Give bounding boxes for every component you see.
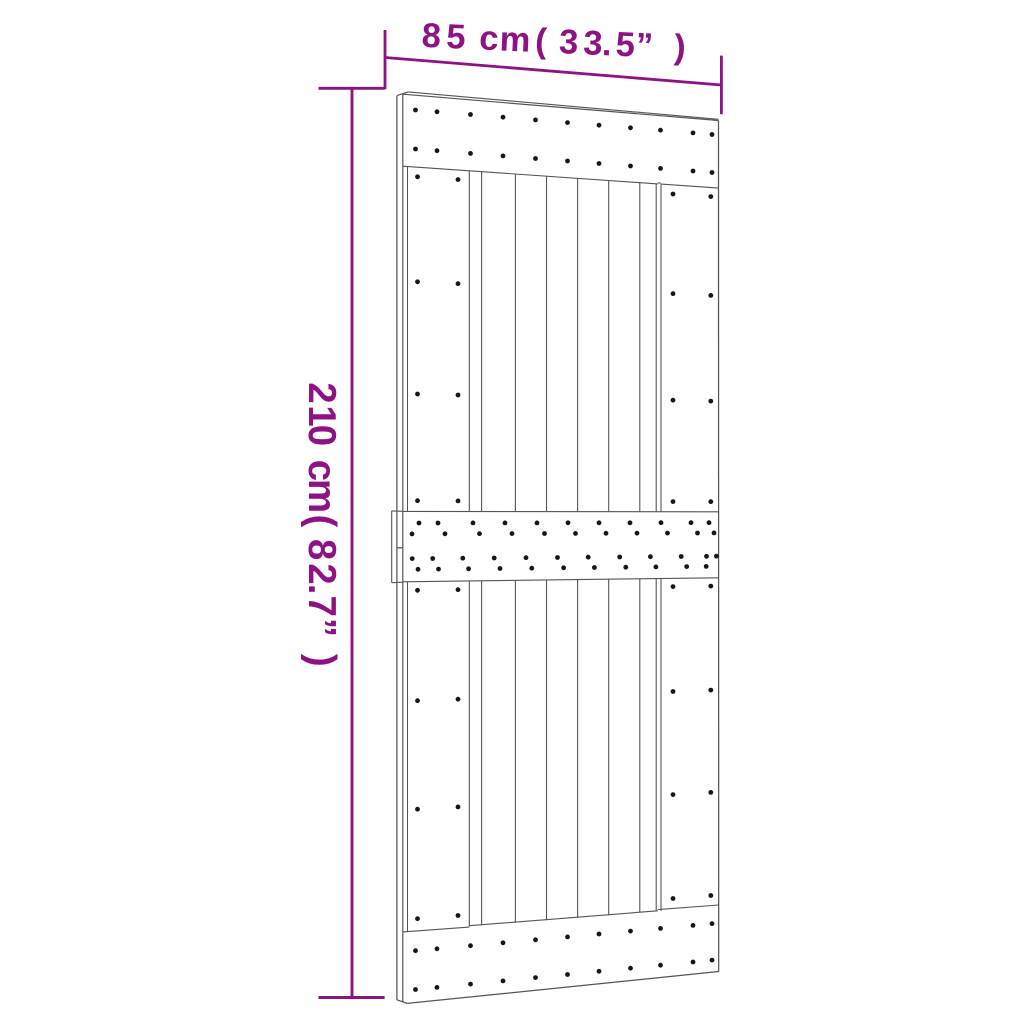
svg-text:210 cm( 82.7” ): 210 cm( 82.7” ) bbox=[300, 382, 343, 666]
